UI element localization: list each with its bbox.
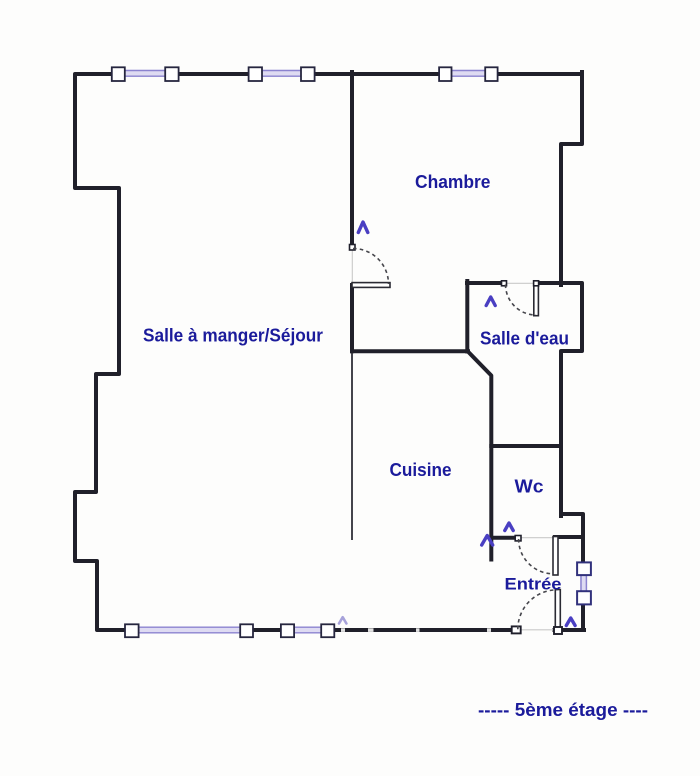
svg-text:Salle à manger/Séjour: Salle à manger/Séjour <box>143 326 323 346</box>
svg-text:Cuisine: Cuisine <box>390 460 452 480</box>
svg-text:Salle d'eau: Salle d'eau <box>480 329 569 349</box>
svg-text:Entrée: Entrée <box>505 575 562 594</box>
svg-text:Chambre: Chambre <box>415 172 491 192</box>
svg-text:Wc: Wc <box>515 477 544 497</box>
svg-text:----- 5ème étage ----: ----- 5ème étage ---- <box>478 700 648 720</box>
